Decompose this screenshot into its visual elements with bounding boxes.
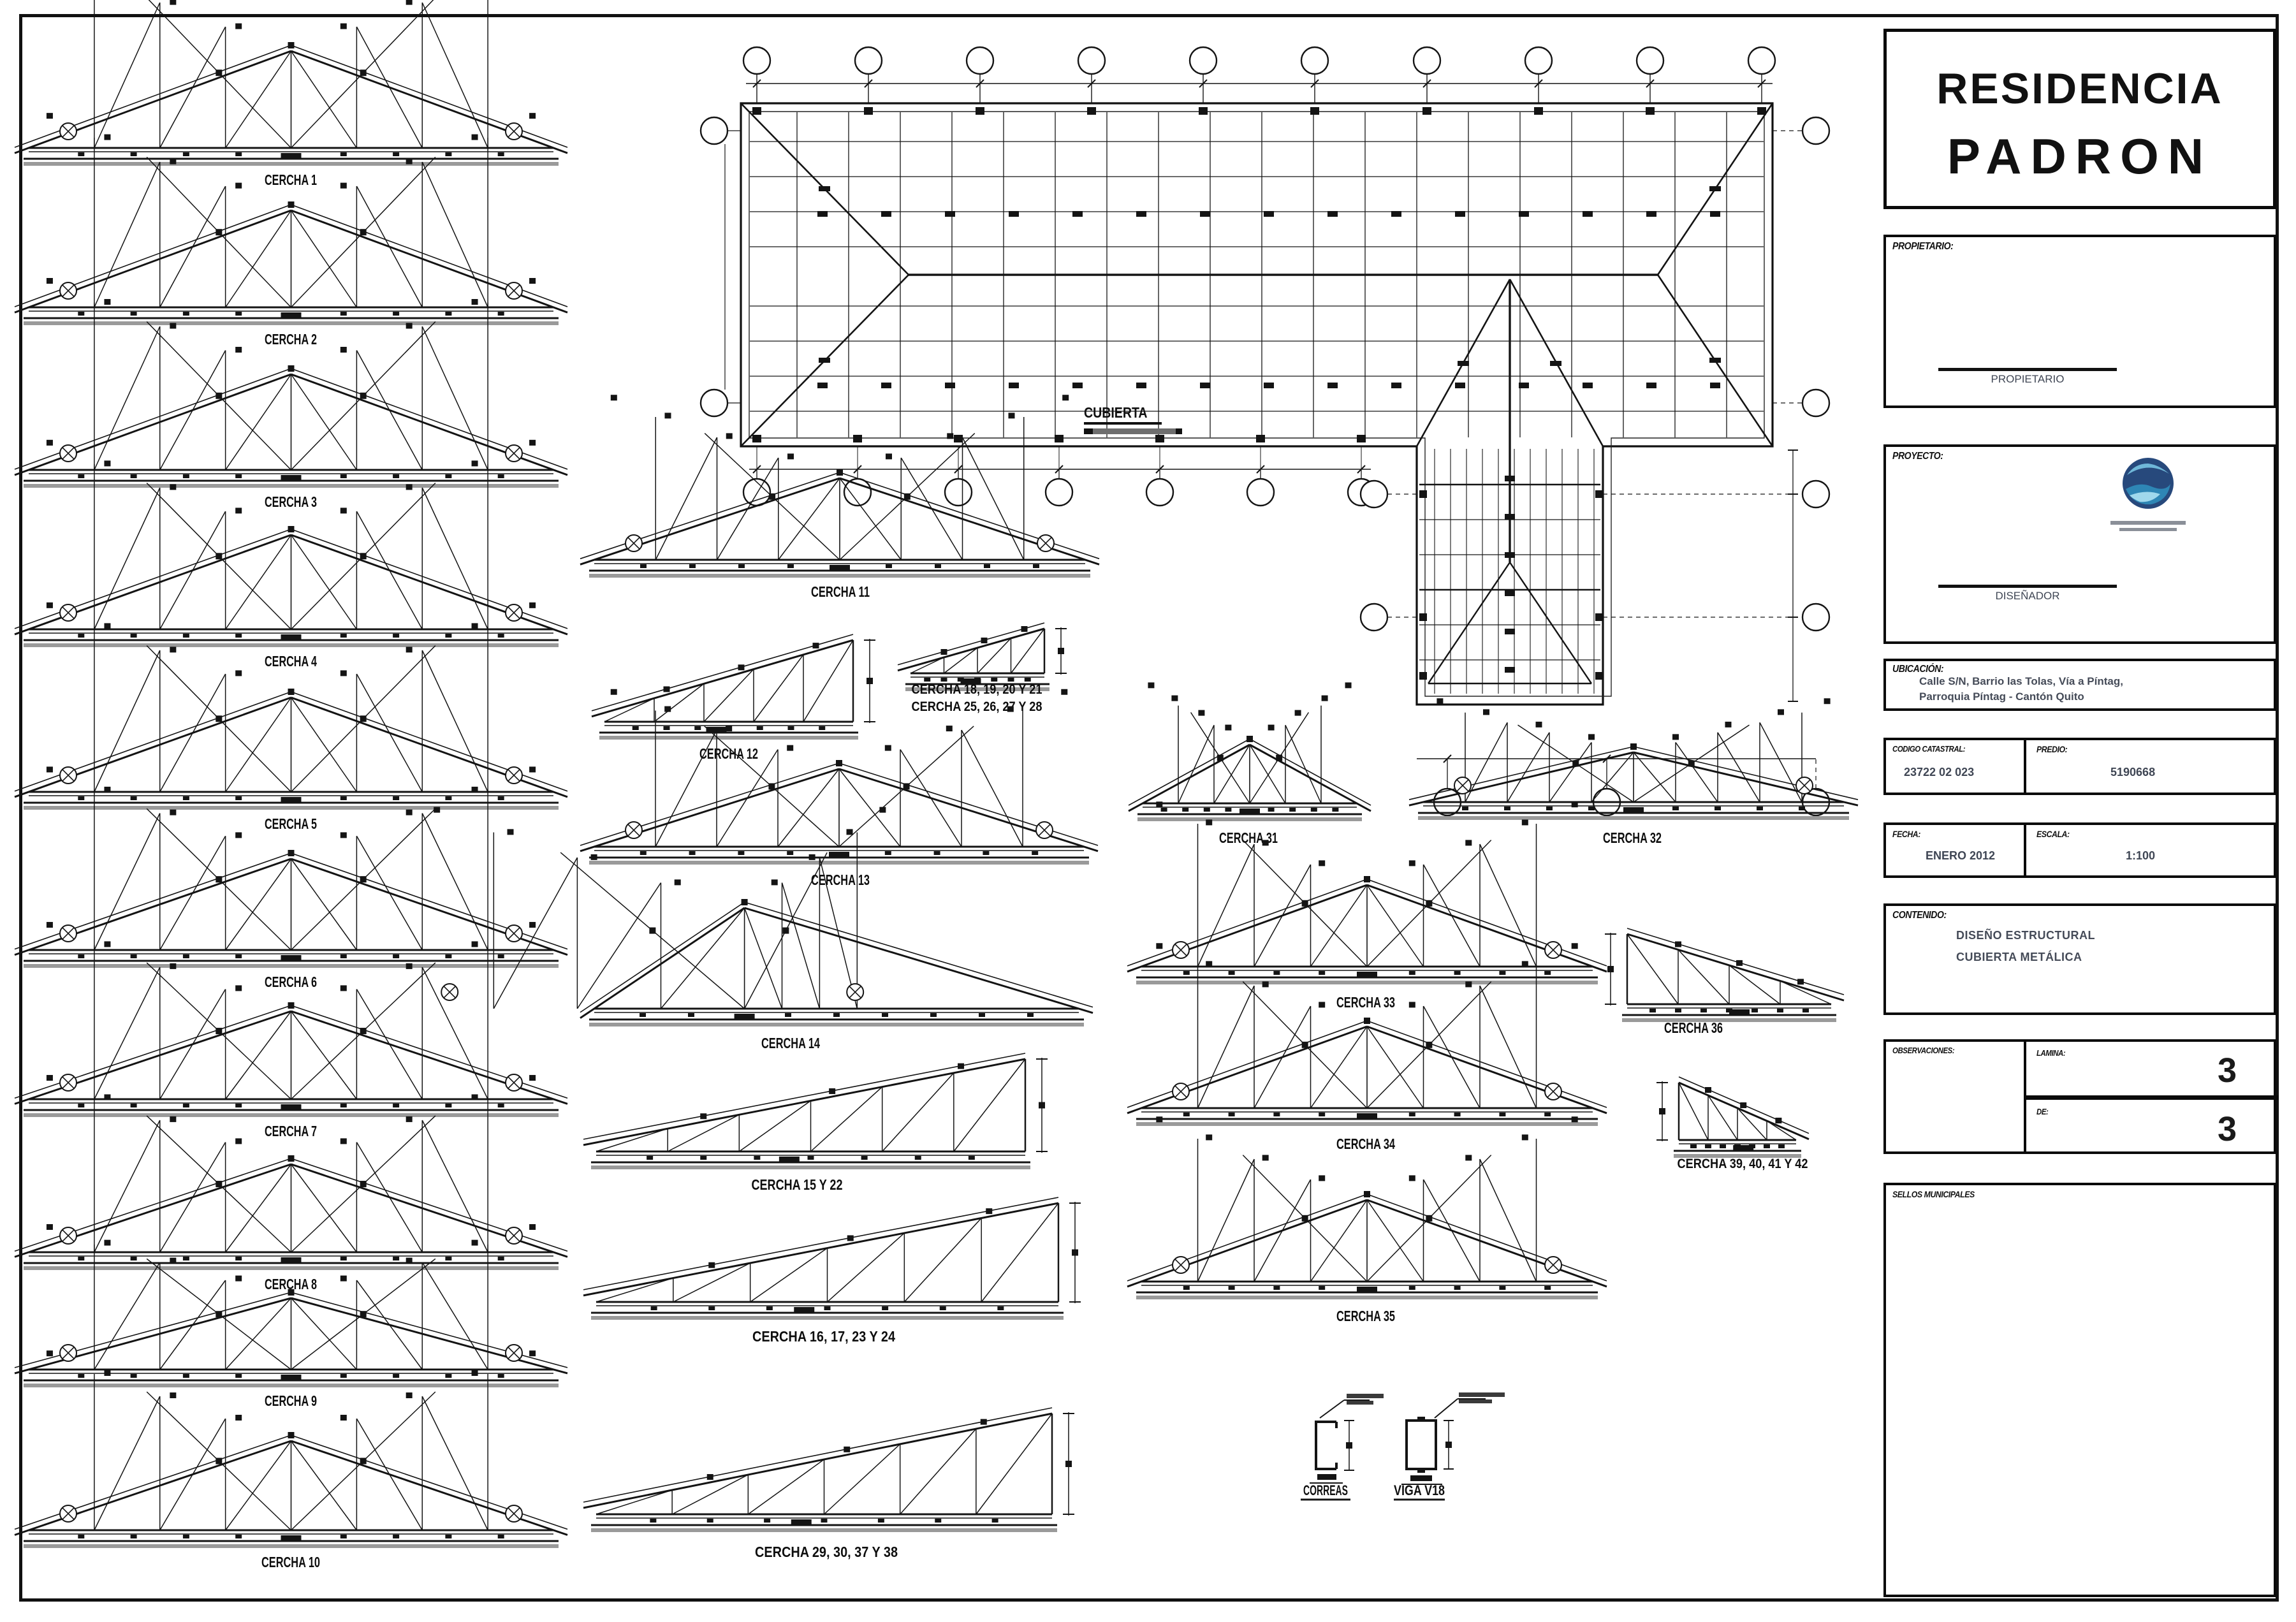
observaciones-lamina-row: OBSERVACIONES: LAMINA: 3 DE: 3 (1883, 1039, 2276, 1154)
codigo-value: 23722 02 023 (1904, 766, 1974, 779)
logo-caption-smudge (2119, 528, 2177, 531)
svg-text:CERCHA 10: CERCHA 10 (261, 1554, 320, 1570)
svg-text:CERCHA 34: CERCHA 34 (1336, 1136, 1395, 1152)
truss-figure (1127, 801, 1607, 983)
predio-value: 5190668 (2110, 766, 2155, 779)
truss-figure (15, 0, 567, 164)
truss-label: CERCHA 6 (265, 974, 317, 990)
svg-text:CERCHA 6: CERCHA 6 (265, 974, 317, 990)
svg-text:CERCHA 36: CERCHA 36 (1664, 1019, 1723, 1036)
truss-figure (898, 623, 1067, 689)
proyecto-box: PROYECTO: DISEÑADOR (1883, 444, 2276, 644)
truss-label: CERCHA 34 (1336, 1136, 1395, 1152)
cell-divider (2024, 740, 2026, 793)
svg-text:CERCHA 2: CERCHA 2 (265, 331, 317, 347)
project-title-line2: PADRON (1887, 128, 2273, 186)
project-title-line1: RESIDENCIA (1887, 64, 2273, 113)
svg-text:CERCHA 11: CERCHA 11 (811, 583, 870, 600)
project-title-box: RESIDENCIA PADRON (1883, 29, 2276, 209)
truss-figure (15, 278, 567, 486)
truss-figure (15, 766, 567, 966)
sellos-label: SELLOS MUNICIPALES (1892, 1189, 1975, 1199)
correas-detail: CORREAS (1301, 1394, 1384, 1500)
svg-text:CERCHA 31: CERCHA 31 (1219, 829, 1278, 846)
propietario-signature-line (1938, 368, 2117, 371)
truss-label: CERCHA 39, 40, 41 Y 42 (1678, 1157, 1808, 1171)
truss-label: CERCHA 11 (811, 583, 870, 600)
structural-drawing-svg: CERCHA 1CERCHA 2CERCHA 3CERCHA 4CERCHA 5… (0, 0, 1881, 1622)
svg-text:CERCHA 29, 30, 37 Y 38: CERCHA 29, 30, 37 Y 38 (755, 1544, 898, 1560)
contenido-line2: CUBIERTA METÁLICA (1956, 951, 2082, 964)
propietario-label: PROPIETARIO: (1892, 241, 1953, 252)
ubicacion-box: UBICACIÓN: Calle S/N, Barrio las Tolas, … (1883, 659, 2276, 711)
truss-label: CERCHA 32 (1603, 829, 1662, 846)
de-value: 3 (2218, 1109, 2237, 1149)
svg-text:CERCHA 15 Y 22: CERCHA 15 Y 22 (752, 1176, 843, 1193)
truss-figure (434, 807, 1093, 1025)
roof-plan (741, 103, 1773, 705)
fecha-label: FECHA: (1892, 829, 1920, 839)
truss-label: CERCHA 10 (261, 1554, 320, 1570)
truss-figure (583, 1053, 1048, 1167)
truss-figure (1409, 698, 1858, 818)
ubicacion-label: UBICACIÓN: (1892, 664, 1943, 675)
svg-text:CERCHA 14: CERCHA 14 (761, 1035, 820, 1051)
ubicacion-line2: Parroquia Píntag - Cantón Quito (1919, 690, 2084, 703)
truss-figure (580, 395, 1099, 576)
truss-figure (583, 1197, 1081, 1318)
svg-text:CERCHA 4: CERCHA 4 (265, 653, 317, 669)
cell-divider (2024, 825, 2026, 875)
contenido-line1: DISEÑO ESTRUCTURAL (1956, 929, 2095, 942)
contenido-box: CONTENIDO: DISEÑO ESTRUCTURAL CUBIERTA M… (1883, 903, 2276, 1015)
svg-text:CERCHA 1: CERCHA 1 (265, 172, 317, 188)
drawing-sheet: CERCHA 1CERCHA 2CERCHA 3CERCHA 4CERCHA 5… (0, 0, 2296, 1622)
contenido-label: CONTENIDO: (1892, 910, 1947, 921)
propietario-box: PROPIETARIO: PROPIETARIO (1883, 235, 2276, 408)
truss-label: CERCHA 18, 19, 20 Y 21CERCHA 25, 26, 27 … (912, 682, 1042, 714)
truss-label: CERCHA 9 (265, 1392, 317, 1409)
codigo-label: CODIGO CATASTRAL: (1892, 744, 1965, 754)
viga-detail: VIGA V18 (1394, 1392, 1505, 1500)
plan-scale-bar (1084, 428, 1182, 434)
truss-label: CERCHA 3 (265, 493, 317, 510)
truss-figure (1129, 682, 1371, 819)
fecha-value: ENERO 2012 (1926, 849, 1995, 863)
svg-text:CERCHA 33: CERCHA 33 (1336, 994, 1395, 1011)
truss-figure (1656, 1077, 1809, 1156)
plan-title: CUBIERTA (1084, 404, 1166, 421)
logo-caption-smudge (2110, 521, 2186, 525)
escala-value: 1:100 (2126, 849, 2155, 863)
truss-label: CERCHA 29, 30, 37 Y 38 (755, 1544, 898, 1560)
predio-label: PREDIO: (2036, 744, 2067, 754)
svg-text:CERCHA 5: CERCHA 5 (265, 815, 317, 832)
svg-text:CERCHA 9: CERCHA 9 (265, 1392, 317, 1409)
svg-text:CERCHA 32: CERCHA 32 (1603, 829, 1662, 846)
observaciones-label: OBSERVACIONES: (1892, 1046, 1954, 1055)
svg-text:CERCHA 16, 17, 23 Y 24: CERCHA 16, 17, 23 Y 24 (752, 1328, 895, 1345)
truss-figure (580, 689, 1098, 863)
truss-label: CERCHA 14 (761, 1035, 820, 1051)
truss-figure (1605, 928, 1844, 1020)
disenador-signature-line (1938, 585, 2117, 588)
truss-label: CERCHA 2 (265, 331, 317, 347)
truss-label: CERCHA 16, 17, 23 Y 24 (752, 1328, 895, 1345)
truss-label: CERCHA 33 (1336, 994, 1395, 1011)
codigo-predio-row: CODIGO CATASTRAL: 23722 02 023 PREDIO: 5… (1883, 738, 2276, 795)
lamina-label: LAMINA: (2036, 1048, 2065, 1058)
propietario-signature-name: PROPIETARIO (1938, 373, 2117, 386)
svg-text:CERCHA 39, 40, 41 Y 42: CERCHA 39, 40, 41 Y 42 (1678, 1157, 1808, 1171)
de-label: DE: (2036, 1107, 2048, 1116)
truss-label: CERCHA 4 (265, 653, 317, 669)
cell-divider (2024, 1095, 2279, 1100)
disenador-signature-name: DISEÑADOR (1938, 590, 2117, 603)
truss-figure (592, 634, 875, 738)
fecha-escala-row: FECHA: ENERO 2012 ESCALA: 1:100 (1883, 822, 2276, 878)
escala-label: ESCALA: (2036, 829, 2070, 839)
truss-label: CERCHA 7 (265, 1123, 317, 1139)
svg-text:CERCHA 7: CERCHA 7 (265, 1123, 317, 1139)
svg-text:CERCHA 18, 19, 20 Y 21: CERCHA 18, 19, 20 Y 21 (912, 682, 1042, 697)
svg-text:CORREAS: CORREAS (1303, 1482, 1348, 1498)
globe-logo-icon (2121, 456, 2175, 511)
truss-figure (583, 1408, 1074, 1530)
svg-text:CERCHA 3: CERCHA 3 (265, 493, 317, 510)
truss-label: CERCHA 31 (1219, 829, 1278, 846)
truss-label: CERCHA 35 (1336, 1308, 1395, 1324)
ubicacion-line1: Calle S/N, Barrio las Tolas, Vía a Pínta… (1919, 675, 2123, 688)
svg-text:CERCHA 35: CERCHA 35 (1336, 1308, 1395, 1324)
sellos-box: SELLOS MUNICIPALES (1883, 1183, 2276, 1597)
truss-label: CERCHA 36 (1664, 1019, 1723, 1036)
truss-label: CERCHA 15 Y 22 (752, 1176, 843, 1193)
proyecto-label: PROYECTO: (1892, 451, 1943, 462)
truss-figure (15, 1075, 567, 1268)
truss-label: CERCHA 5 (265, 815, 317, 832)
plan-title-underline (1084, 422, 1162, 425)
truss-label: CERCHA 1 (265, 172, 317, 188)
lamina-value: 3 (2218, 1051, 2237, 1090)
svg-text:VIGA V18: VIGA V18 (1394, 1482, 1445, 1498)
